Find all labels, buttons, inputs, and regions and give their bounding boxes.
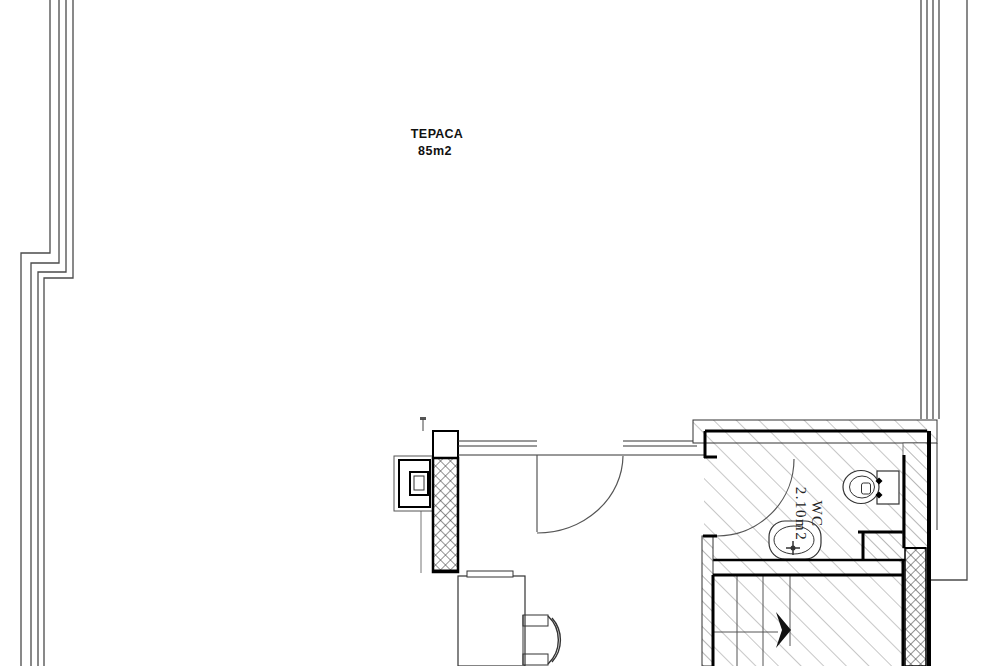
- floor-plan-page: ТЕРАСА 85m2: [0, 0, 1000, 666]
- kitchen-counter: [458, 571, 560, 666]
- terrace-door: [537, 455, 623, 533]
- toilet-tank: [877, 471, 899, 504]
- pillar-assembly: [394, 417, 459, 573]
- right-wall-crosshatch: [905, 548, 926, 666]
- right-wall: [903, 431, 937, 666]
- wc-area-label: 2.10m2: [793, 487, 809, 541]
- terrace-area-label: 85m2: [418, 144, 452, 158]
- terrace-door-wall: [458, 441, 704, 455]
- pillar-cap: [433, 431, 458, 458]
- wc-label: WC: [809, 500, 825, 527]
- terrace-parapet-left: [21, 0, 73, 666]
- duct-wall: [858, 532, 903, 560]
- pillar-crosshatch: [433, 458, 458, 572]
- wc-south-wall: [713, 560, 905, 575]
- terrace-label: ТЕРАСА: [411, 127, 464, 141]
- counter-appliance: [523, 615, 560, 665]
- terrace-door-arc: [537, 456, 623, 533]
- toilet: [843, 471, 899, 505]
- floor-plan: ТЕРАСА 85m2: [0, 0, 1000, 666]
